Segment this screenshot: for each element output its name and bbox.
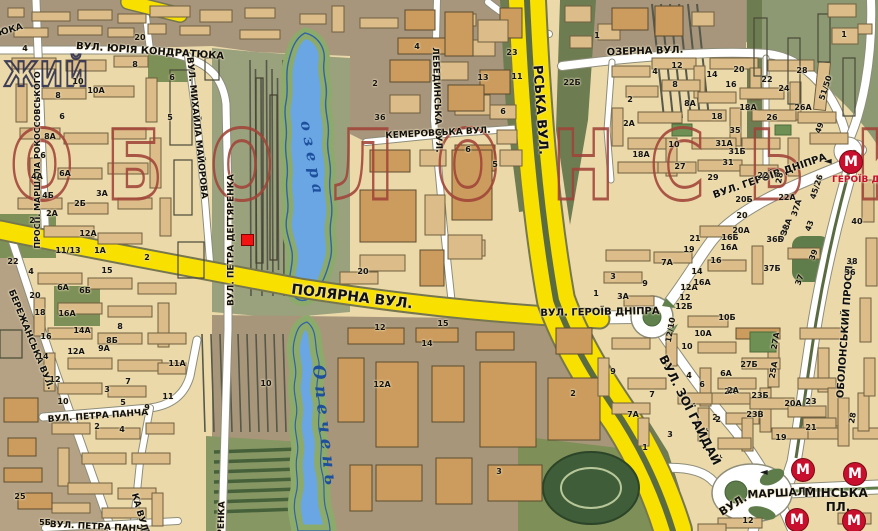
building-number: 27Б — [740, 361, 757, 369]
building — [108, 163, 148, 174]
building-number: 10А — [87, 87, 104, 95]
building-number: 4 — [652, 68, 658, 76]
building-number: 15 — [101, 267, 112, 275]
building-green — [775, 125, 791, 135]
building — [628, 138, 666, 149]
building-number: 6 — [465, 146, 471, 154]
building-number: 8А — [44, 133, 56, 141]
building-number: 3А — [617, 293, 629, 301]
building-number: 36 — [374, 114, 385, 122]
building — [864, 358, 875, 396]
building-number: 1 — [594, 32, 600, 40]
building — [58, 383, 102, 394]
building — [548, 378, 600, 440]
building — [300, 14, 326, 24]
building-number: 12Б — [675, 303, 692, 311]
building — [436, 458, 472, 504]
building — [52, 503, 90, 513]
building — [390, 60, 430, 82]
building — [425, 195, 445, 235]
building-number: 8 — [672, 81, 678, 89]
building — [698, 160, 742, 171]
building-number: 4 — [686, 372, 692, 380]
building — [58, 26, 102, 35]
building-number: 38 — [846, 258, 857, 266]
building-number: 7А — [627, 411, 639, 419]
building — [497, 130, 517, 144]
building — [612, 108, 623, 146]
building-number: 4Б — [42, 192, 54, 200]
building — [565, 6, 591, 22]
building — [118, 198, 152, 209]
building — [32, 12, 70, 21]
building-number: 16 — [725, 81, 736, 89]
building — [64, 133, 108, 144]
building-number: 11/13 — [55, 247, 80, 255]
building-number: 11А — [168, 360, 185, 368]
building — [332, 6, 344, 32]
building — [150, 138, 161, 188]
building — [452, 150, 492, 220]
building-number: 4 — [28, 268, 34, 276]
building-number: 31 — [722, 159, 733, 167]
building-number: 2 — [29, 217, 35, 225]
building-number: 22 — [7, 258, 18, 266]
building — [8, 438, 36, 456]
building — [240, 30, 280, 39]
building — [862, 180, 874, 222]
building — [108, 306, 152, 317]
building-green — [672, 124, 692, 136]
building-number: 5 — [120, 399, 126, 407]
building-number: 2 — [715, 416, 721, 424]
building-number: 18А — [739, 104, 756, 112]
building-number: 10 — [668, 141, 679, 149]
building-number: 19 — [775, 434, 786, 442]
stadium — [543, 452, 639, 524]
building — [146, 423, 174, 434]
metro-icon: М — [843, 510, 865, 531]
building-number: 20 — [29, 292, 40, 300]
building-number: 18А — [632, 151, 649, 159]
building — [150, 6, 190, 17]
building-number: 16А — [58, 310, 75, 318]
building-number: 5 — [492, 161, 498, 169]
adjacent-district-letters: ЖИЙ — [4, 58, 90, 92]
building-number: 26А — [794, 104, 811, 112]
building — [598, 358, 609, 396]
building — [78, 10, 112, 20]
building — [360, 190, 416, 242]
building-number: 12 — [374, 324, 385, 332]
building — [742, 138, 780, 149]
metro-icon: М — [844, 463, 866, 485]
building-number: 20Б — [735, 196, 752, 204]
direction-arrow-icon: ◄ — [824, 157, 832, 167]
building-number: 8 — [132, 61, 138, 69]
building — [88, 278, 132, 289]
building — [160, 198, 171, 236]
building-number: 8 — [55, 92, 61, 100]
building-number: 24 — [778, 85, 789, 93]
building-number: 6 — [59, 113, 65, 121]
building-number: 29 — [707, 174, 718, 182]
building — [556, 328, 592, 354]
building — [638, 112, 682, 123]
building-number: 14А — [73, 327, 90, 335]
building-number: 6А — [59, 170, 71, 178]
building — [476, 332, 514, 350]
building-number: 1 — [841, 31, 847, 39]
building-number: 22Б — [563, 79, 580, 87]
building-number: 10А — [694, 330, 711, 338]
building — [108, 386, 146, 397]
building-number: 2А — [623, 120, 635, 128]
building-number: 7А — [661, 259, 673, 267]
building-number: 2 — [372, 80, 378, 88]
building — [828, 4, 856, 17]
building — [338, 358, 364, 422]
building — [98, 333, 142, 344]
building — [376, 465, 422, 501]
building-number: 25 — [14, 493, 25, 501]
building — [500, 150, 522, 166]
building-number: 10 — [57, 398, 68, 406]
building — [810, 133, 848, 144]
building-number: 6А — [720, 370, 732, 378]
building-number: 16 — [710, 257, 721, 265]
building — [740, 88, 784, 99]
building-number: 9А — [98, 345, 110, 353]
building-number: 14 — [421, 340, 432, 348]
building — [376, 362, 418, 447]
building — [420, 250, 444, 286]
building — [132, 453, 170, 464]
street-label: МІНСЬКА — [804, 487, 868, 499]
building — [114, 56, 148, 67]
building-number: 12 — [742, 517, 753, 525]
building-number: 20А — [784, 400, 801, 408]
building-number: 20 — [736, 212, 747, 220]
building-number: 18 — [34, 309, 45, 317]
building — [866, 238, 877, 286]
building — [180, 26, 210, 35]
building-number: 12 — [679, 294, 690, 302]
building-number: 11 — [511, 73, 522, 81]
building — [655, 6, 683, 36]
building-number: 16Б — [721, 234, 738, 242]
building-number: 37Б — [763, 265, 780, 273]
city-map[interactable]: ОБОЛОНСЬКЖИЙ ВУЛ. ЮРІЯ КОНДРАТЮКАЮРІЯ КО… — [0, 0, 878, 531]
building — [440, 62, 468, 80]
building — [478, 20, 508, 42]
building — [405, 10, 435, 30]
metro-icon: М — [840, 151, 862, 173]
building-number: 14 — [706, 71, 717, 79]
building-number: 22 — [761, 76, 772, 84]
building-number: 23В — [746, 411, 763, 419]
street-label: ДЕГТЯРЕНКА — [216, 501, 227, 531]
building — [360, 18, 398, 28]
building-number: 14 — [691, 268, 702, 276]
building-number: 8 — [117, 323, 123, 331]
building-number: 6 — [40, 152, 46, 160]
building-number: 10 — [72, 78, 83, 86]
building-number: 16А — [720, 244, 737, 252]
building — [752, 246, 763, 284]
building — [612, 338, 650, 349]
building-number: 2А — [727, 387, 739, 395]
building-number: 28 — [796, 67, 807, 75]
building — [200, 10, 232, 22]
building — [138, 283, 176, 294]
building — [698, 92, 736, 103]
building-number: 5 — [167, 114, 173, 122]
metro-icon: М — [792, 459, 814, 481]
building-number: 27 — [674, 163, 685, 171]
building-number: 10 — [260, 380, 271, 388]
building — [618, 162, 662, 173]
building-number: 23Б — [751, 392, 768, 400]
building-number: 16А — [693, 279, 710, 287]
building-number: 36Б — [766, 236, 783, 244]
building — [82, 453, 126, 464]
building-number: 6А — [57, 284, 69, 292]
building-number: 20 — [357, 268, 368, 276]
building — [398, 38, 452, 54]
building-number: 31Б — [728, 148, 745, 156]
building — [148, 333, 186, 344]
building-number: 3 — [667, 431, 673, 439]
building-number: 14 — [37, 353, 48, 361]
building-number: 40 — [851, 218, 862, 226]
building-number: 2 — [94, 423, 100, 431]
building-number: 4 — [414, 43, 420, 51]
building — [34, 298, 45, 336]
location-marker — [241, 234, 254, 246]
building-number: 2 — [144, 254, 150, 262]
building-number: 1А — [94, 247, 106, 255]
building — [480, 362, 536, 447]
building — [858, 24, 872, 34]
building-number: 2 — [627, 96, 633, 104]
building-number: 6 — [169, 74, 175, 82]
building-number: 2 — [570, 390, 576, 398]
building-number: 4А — [31, 173, 43, 181]
building-number: 35 — [729, 127, 740, 135]
building-number: 3 — [104, 386, 110, 394]
building — [370, 150, 410, 172]
building-number: 1 — [593, 290, 599, 298]
building — [445, 12, 473, 56]
building — [638, 418, 649, 446]
metro-station-label: ГЕРОЇВ ДНІПРА — [832, 175, 878, 185]
building — [96, 428, 140, 439]
building-number: 5Б — [39, 519, 51, 527]
building — [698, 342, 736, 353]
street-label: ВУЛ. ПЕТРА ДЕГТЯРЕНКА — [228, 174, 237, 306]
building-number: 6 — [699, 381, 705, 389]
building — [860, 298, 871, 342]
building — [4, 468, 42, 482]
building — [245, 8, 275, 18]
building-number: 20 — [134, 34, 145, 42]
building — [570, 36, 592, 48]
building-number: 23 — [506, 49, 517, 57]
building — [152, 493, 163, 526]
building-number: 9 — [610, 368, 616, 376]
building-number: 11 — [162, 393, 173, 401]
building-number: 3 — [610, 273, 616, 281]
building — [108, 28, 134, 37]
building — [68, 358, 112, 369]
building-number: 10 — [681, 343, 692, 351]
building-number: 3 — [496, 468, 502, 476]
building-number: 12А — [67, 348, 84, 356]
building-number: 3А — [96, 190, 108, 198]
building-number: 13 — [477, 74, 488, 82]
building-number: 12А — [373, 381, 390, 389]
building — [68, 483, 112, 494]
building-number: 9 — [642, 280, 648, 288]
building-number: 9 — [144, 404, 150, 412]
building-number: 2Б — [74, 200, 86, 208]
building-number: 7 — [649, 391, 655, 399]
building — [58, 448, 69, 486]
building — [118, 14, 146, 23]
building-number: 22 — [757, 172, 768, 180]
building-number: 1 — [642, 444, 648, 452]
building — [606, 250, 650, 261]
building-number: 15 — [437, 320, 448, 328]
direction-arrow-icon: ◄ — [760, 468, 768, 478]
building-number: 6Б — [79, 287, 91, 295]
building-number: 10Б — [718, 314, 735, 322]
building — [662, 80, 700, 91]
building-number: 12А — [79, 230, 96, 238]
building-number: 2А — [46, 210, 58, 218]
building-number: 8А — [684, 100, 696, 108]
building — [146, 78, 157, 122]
building — [698, 524, 726, 531]
building-number: 20 — [733, 66, 744, 74]
building — [800, 328, 844, 339]
street-label: ВУЛ. ГЕРОЇВ ДНІПРА — [540, 307, 659, 319]
building-number: 23 — [805, 398, 816, 406]
building-number: 21 — [689, 235, 700, 243]
building — [628, 378, 666, 389]
building-number: 21 — [805, 424, 816, 432]
building-number: 18 — [711, 113, 722, 121]
building — [52, 423, 90, 434]
building-number: 12 — [49, 376, 60, 384]
building-number: 7 — [125, 378, 131, 386]
building — [858, 393, 869, 431]
building — [718, 438, 751, 449]
building-number: 4 — [22, 45, 28, 53]
building — [148, 24, 166, 34]
building — [432, 366, 464, 422]
building — [612, 66, 650, 77]
metro-icon: М — [786, 509, 808, 531]
building — [448, 235, 482, 259]
building-number: 16 — [40, 333, 51, 341]
building-number: 12 — [671, 62, 682, 70]
building — [118, 360, 162, 371]
building-number: 19 — [683, 246, 694, 254]
building — [8, 8, 24, 17]
building — [448, 85, 484, 111]
building — [350, 465, 372, 511]
building — [612, 8, 648, 30]
building — [112, 128, 146, 139]
building — [798, 378, 836, 389]
building-number: 4 — [119, 426, 125, 434]
building-number: 26 — [766, 114, 777, 122]
building — [4, 398, 38, 422]
building — [390, 95, 420, 113]
building-number: 6 — [500, 108, 506, 116]
building — [692, 12, 714, 26]
building-number: 36 — [844, 269, 855, 277]
building — [98, 233, 142, 244]
